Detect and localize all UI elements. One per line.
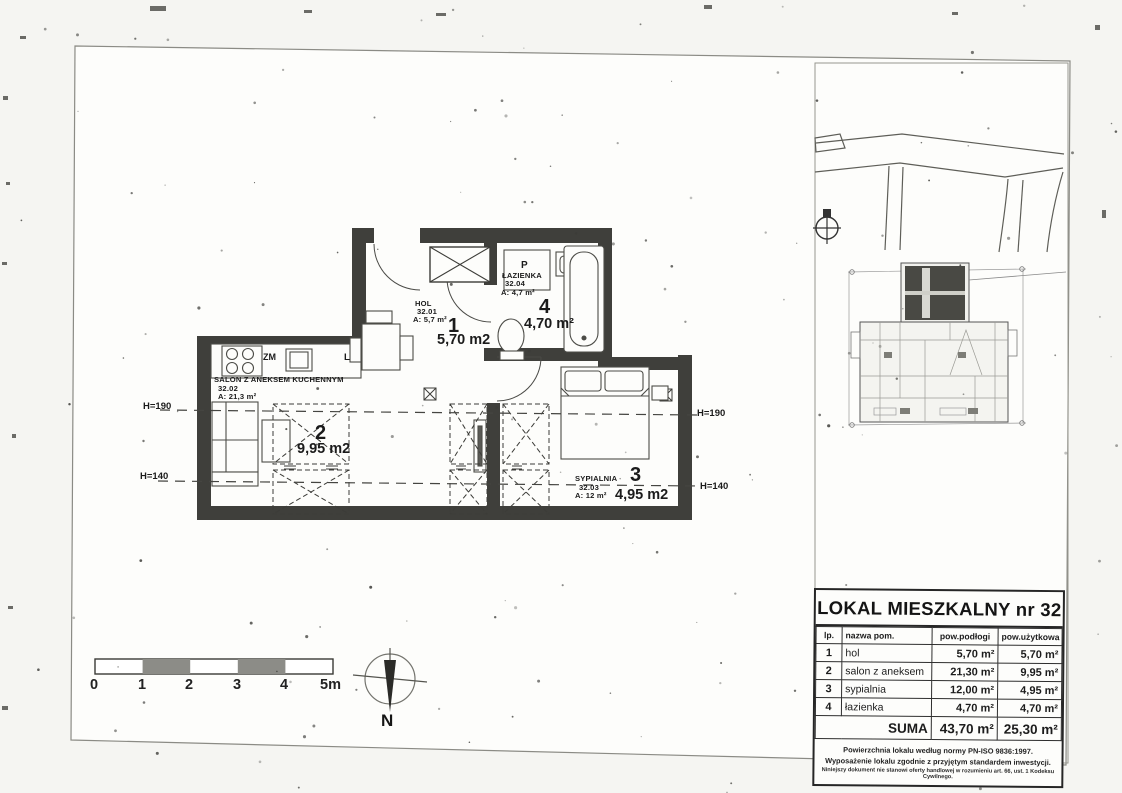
table-cell: sypialnia bbox=[842, 680, 932, 699]
table-cell: 1 bbox=[816, 644, 842, 662]
room-number-lazienka: 4 bbox=[539, 297, 550, 317]
note-line: Niniejszy dokument nie stanowi oferty ha… bbox=[817, 767, 1058, 781]
table-cell: 21,30 m² bbox=[932, 663, 998, 682]
header-lp: lp. bbox=[816, 627, 842, 644]
table-row: 4 łazienka 4,70 m² 4,70 m² bbox=[815, 698, 1061, 718]
room-number-salon: 2 bbox=[315, 423, 326, 443]
height-marker-right-190: H=190 bbox=[697, 409, 725, 419]
table-cell: 2 bbox=[816, 662, 842, 680]
header-usable-area: pow.użytkowa bbox=[998, 628, 1062, 646]
table-cell: hol bbox=[842, 644, 932, 663]
table-row: 1 hol 5,70 m² 5,70 m² bbox=[816, 644, 1062, 664]
scale-label-2: 2 bbox=[185, 677, 193, 693]
table-cell: 4,95 m² bbox=[998, 681, 1062, 700]
table-cell: łazienka bbox=[841, 698, 931, 717]
scale-label-1: 1 bbox=[138, 677, 146, 693]
height-marker-left-140: H=140 bbox=[140, 472, 168, 482]
scale-label-5m: 5m bbox=[320, 677, 341, 693]
table-cell: 4,70 m² bbox=[997, 699, 1061, 718]
scale-label-4: 4 bbox=[280, 677, 288, 693]
room-area-note-sypialnia: A: 12 m² bbox=[575, 492, 607, 500]
room-label-salon: SALON Z ANEKSEM KUCHENNYM bbox=[214, 376, 344, 384]
height-marker-right-140: H=140 bbox=[700, 482, 728, 492]
table-cell: 3 bbox=[816, 680, 842, 698]
room-number-sypialnia: 3 bbox=[630, 465, 641, 485]
room-area-lazienka: 4,70 m² bbox=[524, 317, 574, 332]
table-cell: 5,70 m² bbox=[932, 645, 998, 664]
apartment-info-table: LOKAL MIESZKALNY nr 32 lp. nazwa pom. po… bbox=[812, 588, 1065, 788]
table-title: LOKAL MIESZKALNY nr 32 bbox=[816, 590, 1063, 628]
table-cell: 9,95 m² bbox=[998, 663, 1062, 682]
scanned-floor-plan-page: HOL 32.01 A: 5,7 m² 1 5,70 m2 ŁAZIENKA 3… bbox=[0, 0, 1122, 793]
room-area-note-hol: A: 5,7 m² bbox=[413, 316, 447, 324]
table-row: 2 salon z aneksem 21,30 m² 9,95 m² bbox=[816, 662, 1062, 682]
fridge-label: L bbox=[344, 353, 350, 363]
height-marker-left-190: H=190 bbox=[143, 402, 171, 412]
north-label: N bbox=[381, 711, 393, 731]
summary-floor-area: 43,70 m² bbox=[931, 717, 997, 741]
table-cell: 12,00 m² bbox=[932, 681, 998, 700]
room-area-hol: 5,70 m2 bbox=[437, 333, 490, 348]
room-label-sypialnia: SYPIALNIA bbox=[575, 475, 617, 483]
room-area-salon: 9,95 m2 bbox=[297, 442, 350, 457]
room-code-lazienka: 32.04 bbox=[505, 280, 525, 288]
summary-label: SUMA bbox=[815, 716, 931, 740]
washer-label: P bbox=[521, 261, 528, 271]
scale-label-3: 3 bbox=[233, 677, 241, 693]
scale-bar bbox=[95, 659, 333, 674]
kitchen-counter bbox=[211, 344, 361, 378]
nightstand bbox=[652, 386, 668, 400]
table-cell: 4,70 m² bbox=[931, 699, 997, 718]
header-name: nazwa pom. bbox=[842, 627, 932, 645]
table-header-row: lp. nazwa pom. pow.podłogi pow.użytkowa bbox=[816, 627, 1062, 646]
room-area-note-salon: A: 21,3 m² bbox=[218, 393, 256, 401]
table-summary-row: SUMA 43,70 m² 25,30 m² bbox=[815, 716, 1061, 741]
table-cell: 4 bbox=[815, 698, 841, 716]
note-line: Wyposażenie lokalu zgodnie z przyjętym s… bbox=[817, 756, 1058, 767]
shaft-box bbox=[430, 247, 490, 282]
note-line: Powierzchnia lokalu według normy PN-ISO … bbox=[818, 745, 1059, 756]
table-cell: salon z aneksem bbox=[842, 662, 932, 681]
header-floor-area: pow.podłogi bbox=[932, 628, 998, 646]
table-cell: 5,70 m² bbox=[998, 645, 1062, 664]
table-row: 3 sypialnia 12,00 m² 4,95 m² bbox=[816, 680, 1062, 700]
table-notes: Powierzchnia lokalu według normy PN-ISO … bbox=[814, 739, 1061, 786]
room-area-note-lazienka: A: 4,7 m² bbox=[501, 289, 535, 297]
summary-usable-area: 25,30 m² bbox=[997, 717, 1061, 741]
room-area-sypialnia: 4,95 m2 bbox=[615, 488, 668, 503]
toilet bbox=[498, 319, 524, 353]
scale-label-0: 0 bbox=[90, 677, 98, 693]
wardrobe bbox=[212, 402, 258, 472]
sink-label: ZM bbox=[263, 353, 276, 362]
